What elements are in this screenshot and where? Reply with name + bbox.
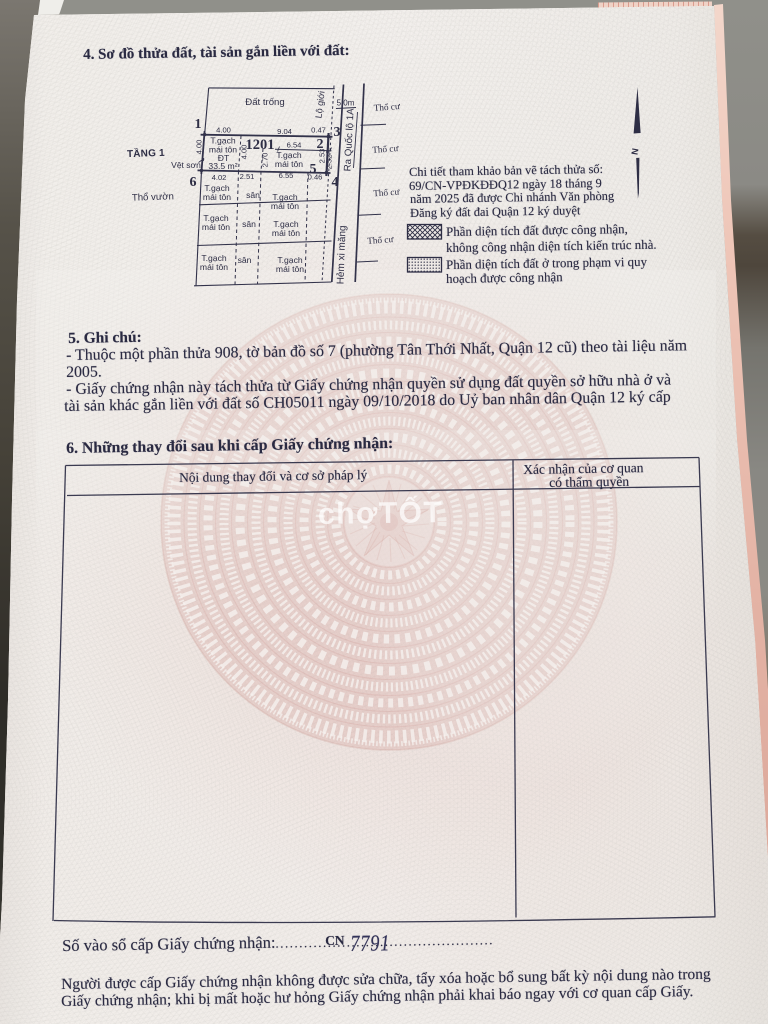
svg-text:0.46: 0.46 [308,173,323,182]
svg-text:N: N [630,147,641,155]
svg-text:4.00: 4.00 [195,140,204,155]
svg-text:mái tôn: mái tôn [200,262,228,272]
svg-text:2.51: 2.51 [240,172,255,181]
svg-text:Vệt sơn: Vệt sơn [171,160,201,170]
svg-text:Đất trống: Đất trống [245,97,284,108]
svg-text:33.5 m²: 33.5 m² [208,161,237,171]
svg-text:1201: 1201 [246,137,275,153]
svg-text:Thổ cư: Thổ cư [373,187,401,199]
svg-text:Thổ cư: Thổ cư [372,143,400,155]
svg-text:4.00: 4.00 [216,126,231,135]
svg-text:mái tôn: mái tôn [271,201,299,211]
svg-text:sân: sân [242,219,256,229]
svg-text:Ra Quốc lộ 1A: Ra Quốc lộ 1A [342,108,356,172]
svg-text:3: 3 [334,125,341,140]
svg-text:6.54: 6.54 [287,141,302,150]
svg-text:mái tôn: mái tôn [275,159,303,169]
svg-text:2.70: 2.70 [261,153,270,168]
svg-text:4.02: 4.02 [212,173,227,182]
svg-text:1: 1 [195,117,202,132]
svg-text:0.47: 0.47 [311,125,326,134]
svg-text:sân: sân [238,255,252,265]
svg-text:Lộ giới: Lộ giới [313,90,326,118]
svg-text:4: 4 [332,175,339,190]
svg-text:Thổ cư: Thổ cư [367,234,395,246]
svg-text:6.55: 6.55 [279,171,294,180]
svg-text:sân: sân [246,190,260,200]
svg-text:TẦNG 1: TẦNG 1 [127,146,166,160]
svg-text:mái tôn: mái tôn [202,222,230,232]
svg-text:9.04: 9.04 [277,127,292,136]
svg-text:2.52: 2.52 [325,155,334,170]
svg-text:Hẻm xi măng: Hẻm xi măng [335,225,348,284]
svg-text:5.0m: 5.0m [337,99,355,108]
svg-text:mái tôn: mái tôn [203,192,231,202]
svg-text:Thổ vườn: Thổ vườn [132,191,174,203]
svg-text:6: 6 [190,175,197,190]
svg-text:4.00: 4.00 [240,145,249,160]
svg-text:mái tôn: mái tôn [272,228,300,238]
svg-text:mái tôn: mái tôn [276,264,304,274]
svg-text:Thổ cư: Thổ cư [373,101,401,113]
